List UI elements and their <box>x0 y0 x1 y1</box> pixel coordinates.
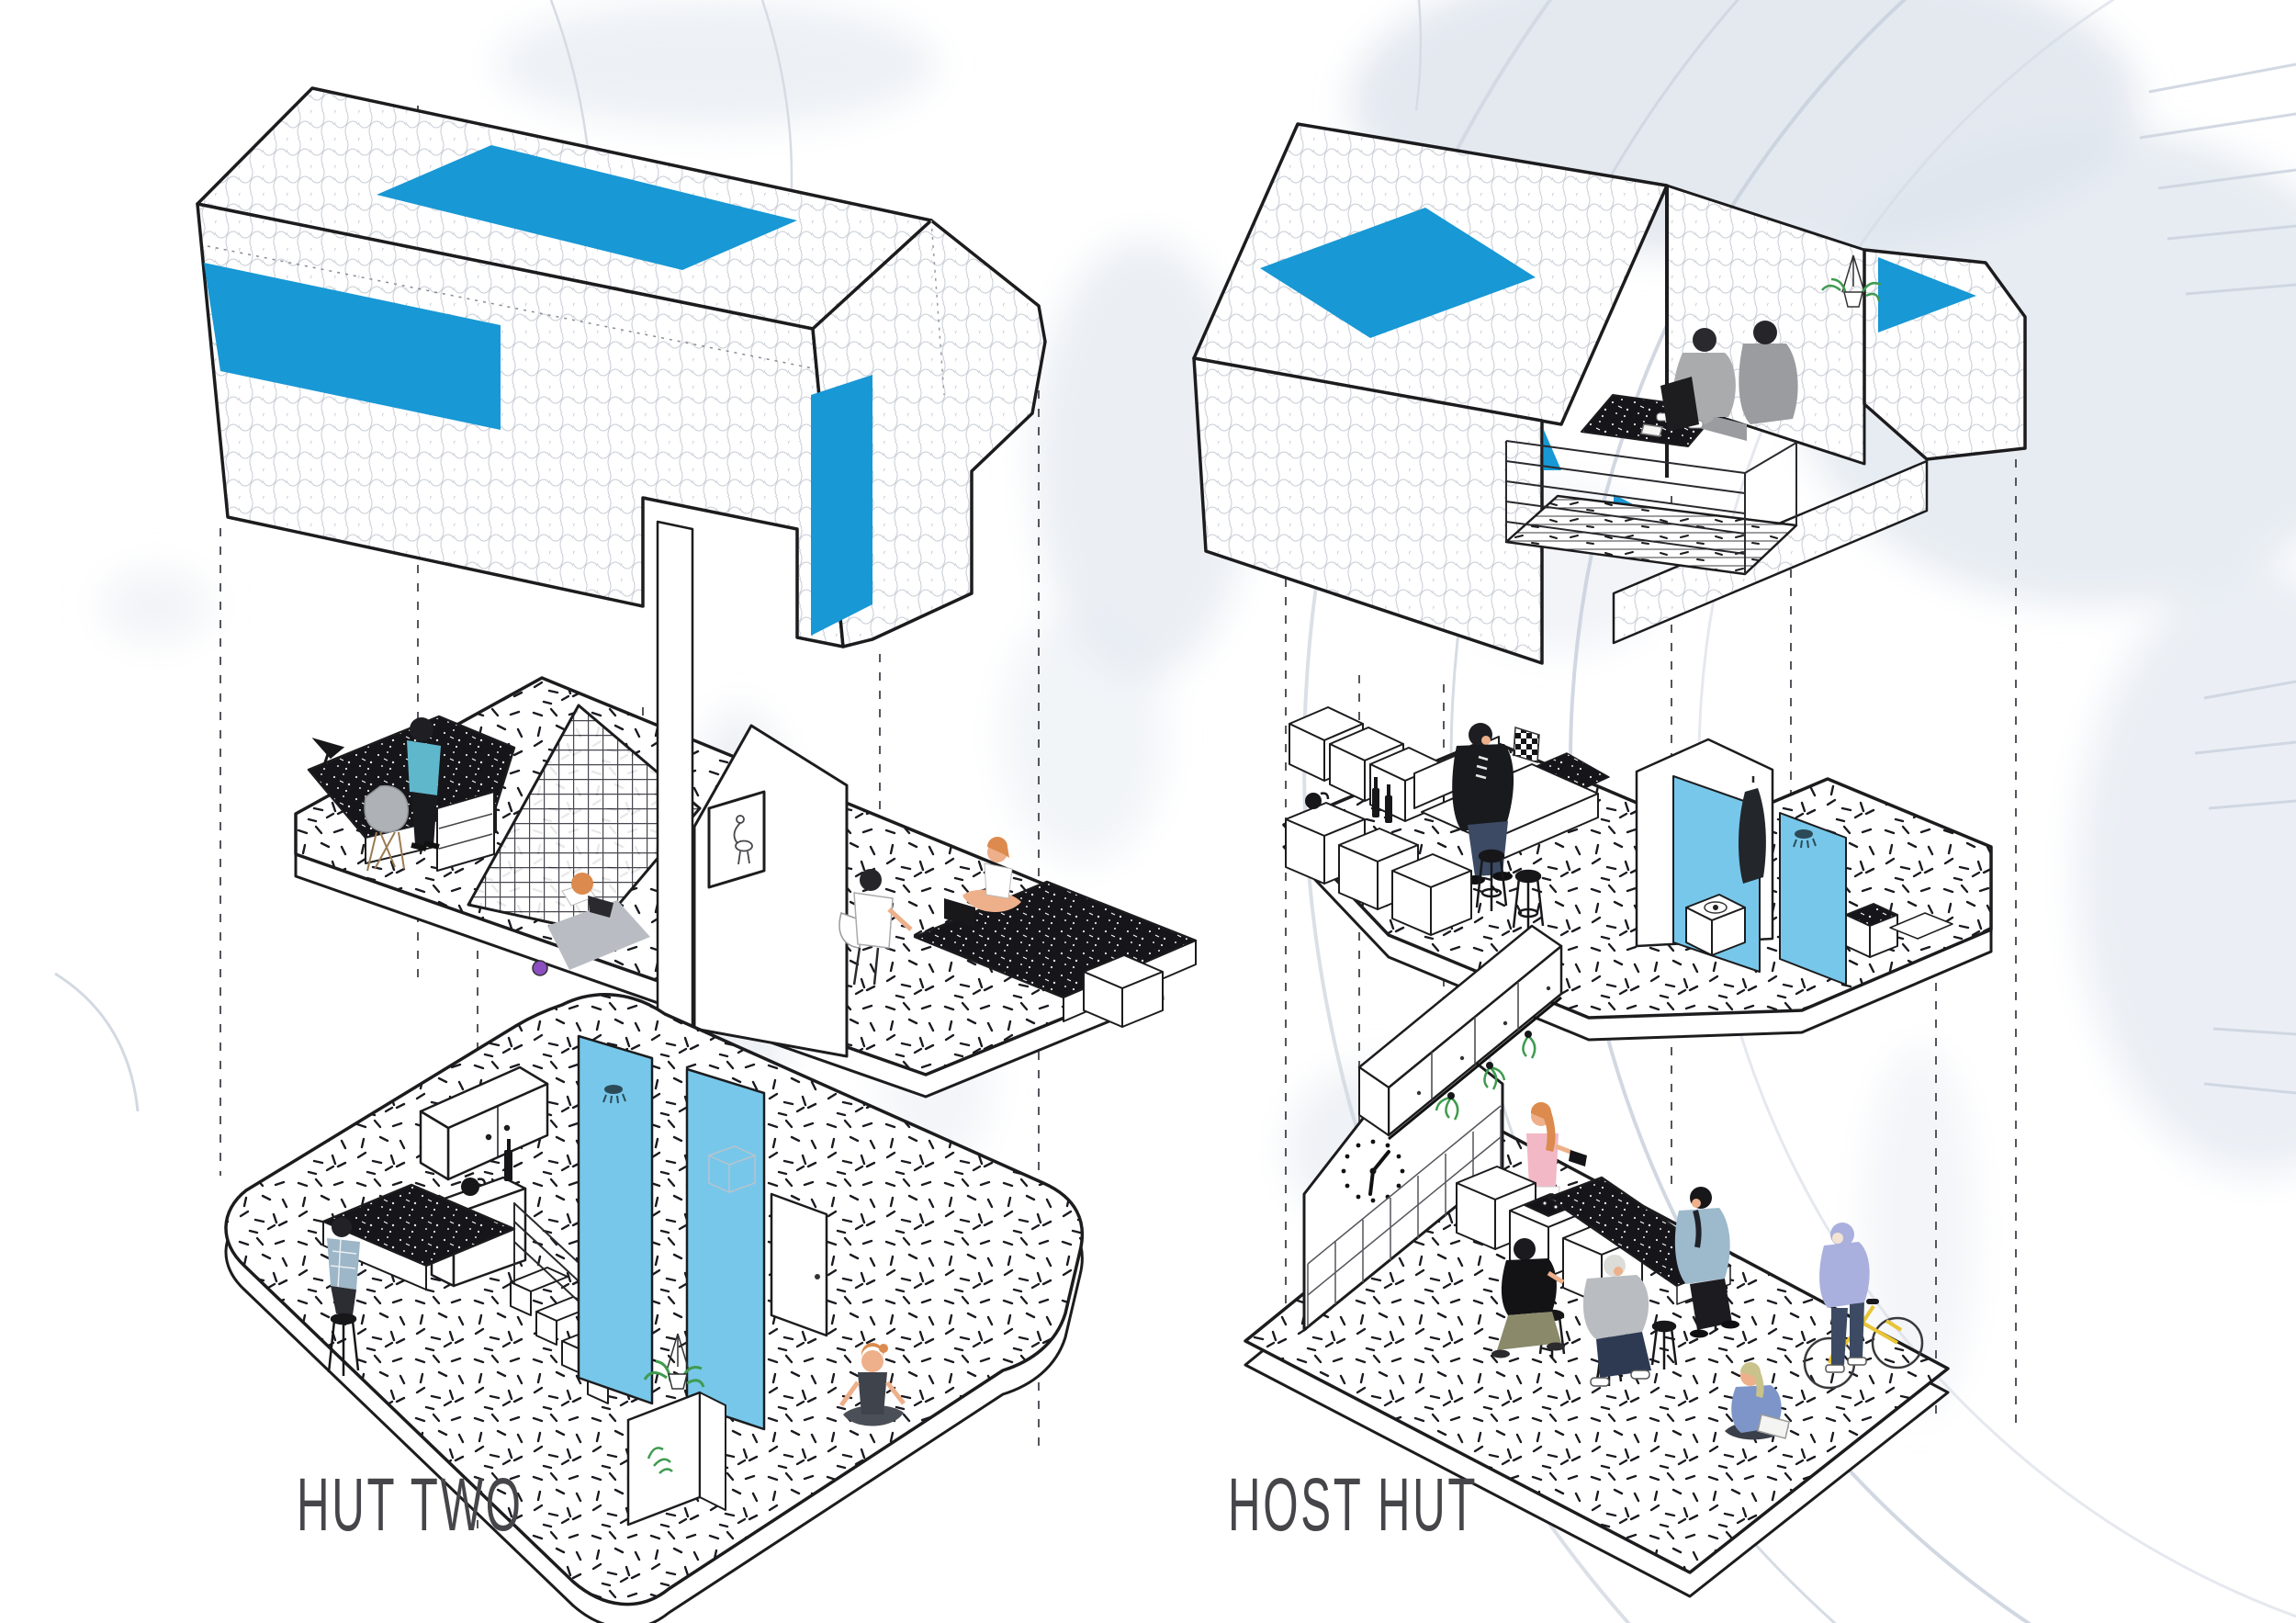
exploded-axonometric-poster: HUT TWO HOST HUT <box>0 0 2296 1623</box>
hanging-coat <box>1739 788 1766 884</box>
hut-two-label: HUT TWO <box>297 1460 523 1548</box>
illustration-canvas <box>0 0 2296 1623</box>
hut-two-figure <box>197 88 1196 1623</box>
sink-cube <box>1686 895 1745 955</box>
black-top-cube <box>1846 904 1897 957</box>
gable-window <box>811 375 872 636</box>
white-cube-seat <box>1084 955 1163 1027</box>
tent-gable-wall <box>658 522 692 1093</box>
white-door-panel <box>771 1194 827 1336</box>
teapot-icon <box>533 961 547 975</box>
host-hut-figure <box>1194 124 2025 1596</box>
host-hut-kitchen-bath-floor <box>1284 707 1991 1040</box>
host-hut-label: HOST HUT <box>1228 1460 1478 1548</box>
hut-two-roof-shell <box>197 88 1045 647</box>
blue-panel-right <box>687 1069 764 1429</box>
coffee-machine-icon <box>1569 1150 1587 1167</box>
picture-frame <box>709 792 764 887</box>
triangle-sliver <box>1544 430 1561 470</box>
book-icon <box>1641 424 1662 436</box>
